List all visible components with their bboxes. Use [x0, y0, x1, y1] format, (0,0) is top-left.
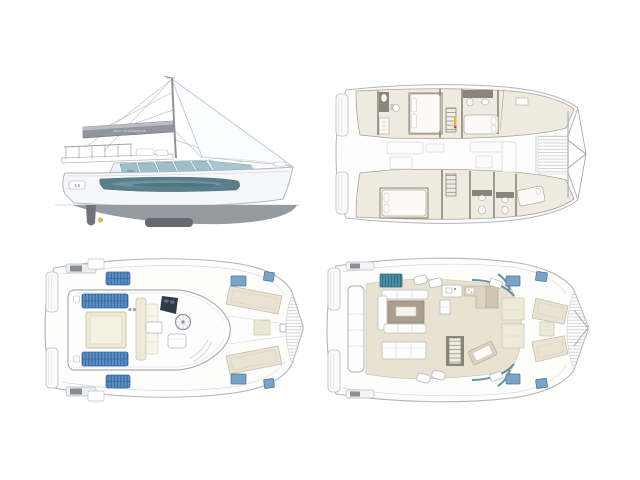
foredeck-locker [540, 322, 554, 336]
keel-fin [145, 218, 193, 227]
foredeck-locker [254, 320, 270, 335]
bathroom-counter [496, 192, 514, 198]
boom-logo: BALI CATAMARANS [114, 129, 146, 133]
companionway-stairs [446, 336, 464, 366]
side-profile-view: BALI CATAMARANS [52, 70, 302, 238]
forepeak-hatch [516, 98, 528, 105]
hull-accommodation-plan-view [330, 78, 592, 230]
pillow [491, 125, 496, 132]
faucet-icon [454, 288, 456, 290]
pillow [384, 193, 389, 202]
mast-foot [128, 308, 131, 311]
flybridge-railing [64, 144, 132, 147]
rudder [86, 205, 96, 226]
catamaran-layout-sheet: BALI CATAMARANS [0, 0, 640, 480]
toilet [393, 104, 399, 112]
cooktop [466, 288, 474, 294]
bow-trampoline [567, 290, 588, 370]
aft-galley-module [380, 274, 402, 287]
flybridge-deck-plan-view [40, 252, 312, 408]
sink [479, 195, 486, 201]
speaker-box [74, 296, 80, 302]
mast [172, 78, 176, 158]
boom-sail-cover: BALI CATAMARANS [83, 121, 173, 138]
main-deck-saloon-plan-view [322, 252, 590, 408]
pillow [412, 98, 417, 112]
pillow [384, 204, 389, 213]
companionway-stairs [446, 174, 456, 196]
stern-badge-text: 4.6 [74, 183, 80, 188]
mast-step-marker-tick [454, 126, 457, 128]
helm-seat [168, 334, 186, 348]
table-tray [396, 307, 416, 316]
flybridge-table [146, 322, 162, 333]
sink [502, 197, 508, 202]
windlass [280, 324, 286, 332]
headsail [172, 79, 292, 166]
pillow [412, 114, 417, 128]
toilet [479, 206, 486, 214]
toilet [467, 98, 473, 106]
flybridge-seat [136, 149, 154, 156]
mast-step-marker [454, 116, 457, 125]
toilet [502, 206, 508, 214]
sink [381, 94, 387, 102]
flybridge-lounge-pad [86, 312, 126, 348]
masthead-windex-icon [164, 76, 175, 78]
sink [481, 99, 488, 105]
speaker-box [74, 356, 80, 362]
second-sofa [382, 342, 426, 359]
propeller-icon [98, 218, 102, 222]
tall-cabinet [486, 286, 498, 308]
aft-cockpit-bench [348, 286, 364, 372]
flybridge-roof [62, 144, 173, 163]
stern-model-badge: 4.6 [69, 181, 85, 189]
hull-window-band [100, 177, 240, 191]
helm-console-profile [156, 150, 168, 156]
pillow [491, 117, 496, 124]
fwd-bathroom-counter [463, 90, 493, 98]
